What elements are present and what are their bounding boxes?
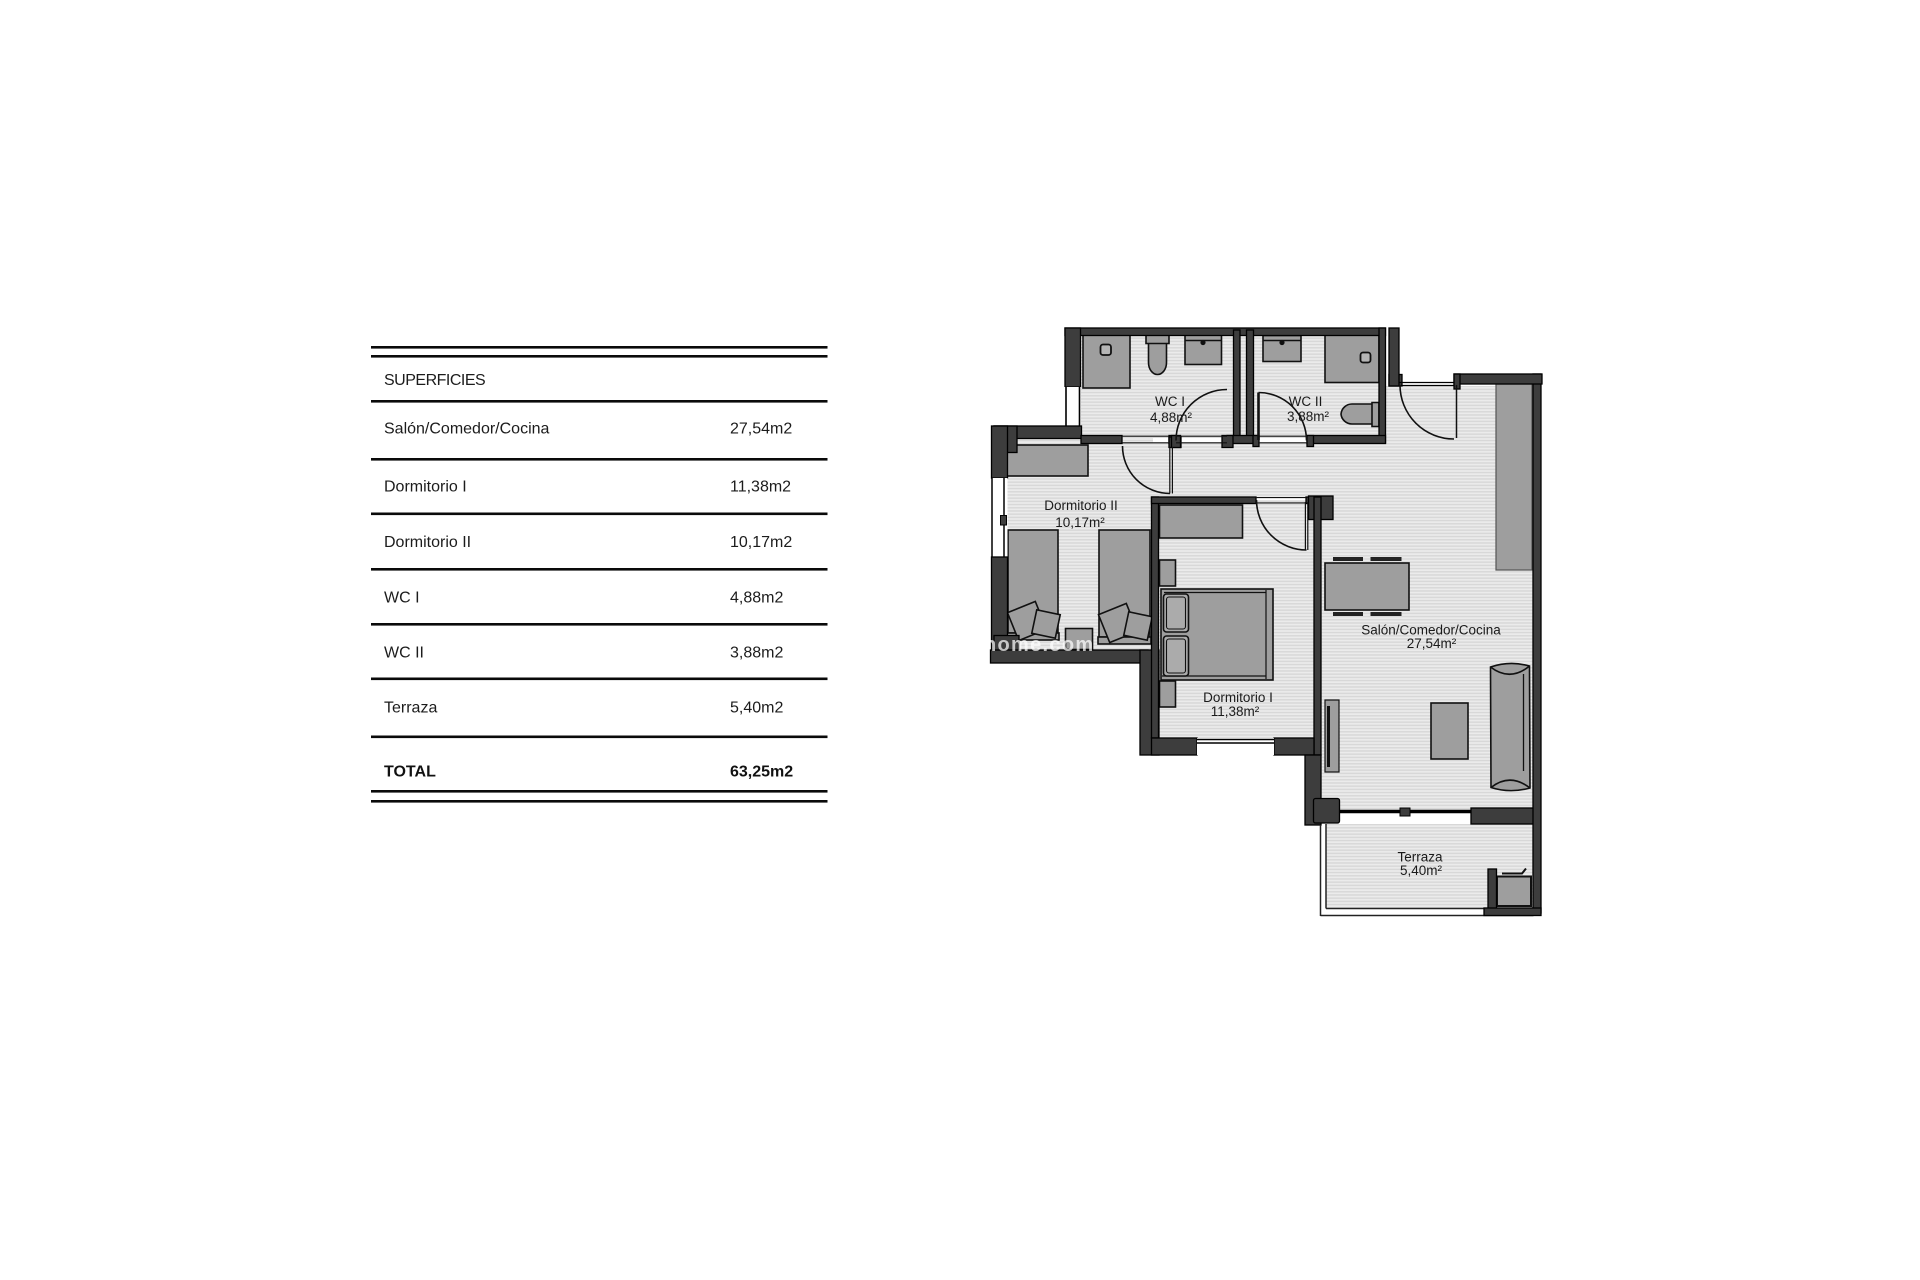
svg-text:4,88m²: 4,88m² xyxy=(1150,410,1193,425)
svg-text:3,88m²: 3,88m² xyxy=(1287,409,1330,424)
svg-text:WC I: WC I xyxy=(384,590,420,607)
svg-text:WC II: WC II xyxy=(384,645,424,662)
svg-text:Terraza: Terraza xyxy=(384,700,437,717)
svg-text:10,17m2: 10,17m2 xyxy=(730,534,792,551)
svg-text:SUPERFICIES: SUPERFICIES xyxy=(384,372,485,389)
svg-text:home.com: home.com xyxy=(984,634,1094,656)
svg-text:4,88m2: 4,88m2 xyxy=(730,590,783,607)
svg-text:10,17m²: 10,17m² xyxy=(1055,515,1105,530)
svg-text:27,54m2: 27,54m2 xyxy=(730,421,792,438)
svg-text:5,40m2: 5,40m2 xyxy=(730,700,783,717)
svg-text:63,25m2: 63,25m2 xyxy=(730,764,793,781)
svg-text:Dormitorio I: Dormitorio I xyxy=(384,479,467,496)
svg-text:5,40m²: 5,40m² xyxy=(1400,863,1443,878)
svg-text:Dormitorio II: Dormitorio II xyxy=(1044,498,1118,513)
svg-text:11,38m²: 11,38m² xyxy=(1211,704,1260,719)
svg-text:TOTAL: TOTAL xyxy=(384,764,436,781)
svg-text:WC I: WC I xyxy=(1155,394,1185,409)
svg-text:11,38m2: 11,38m2 xyxy=(730,479,791,496)
svg-text:Dormitorio I: Dormitorio I xyxy=(1203,690,1273,705)
svg-text:Salón/Comedor/Cocina: Salón/Comedor/Cocina xyxy=(384,421,550,438)
svg-text:27,54m²: 27,54m² xyxy=(1407,636,1457,651)
svg-text:WC II: WC II xyxy=(1289,394,1323,409)
svg-text:Dormitorio II: Dormitorio II xyxy=(384,534,471,551)
svg-text:3,88m2: 3,88m2 xyxy=(730,645,783,662)
